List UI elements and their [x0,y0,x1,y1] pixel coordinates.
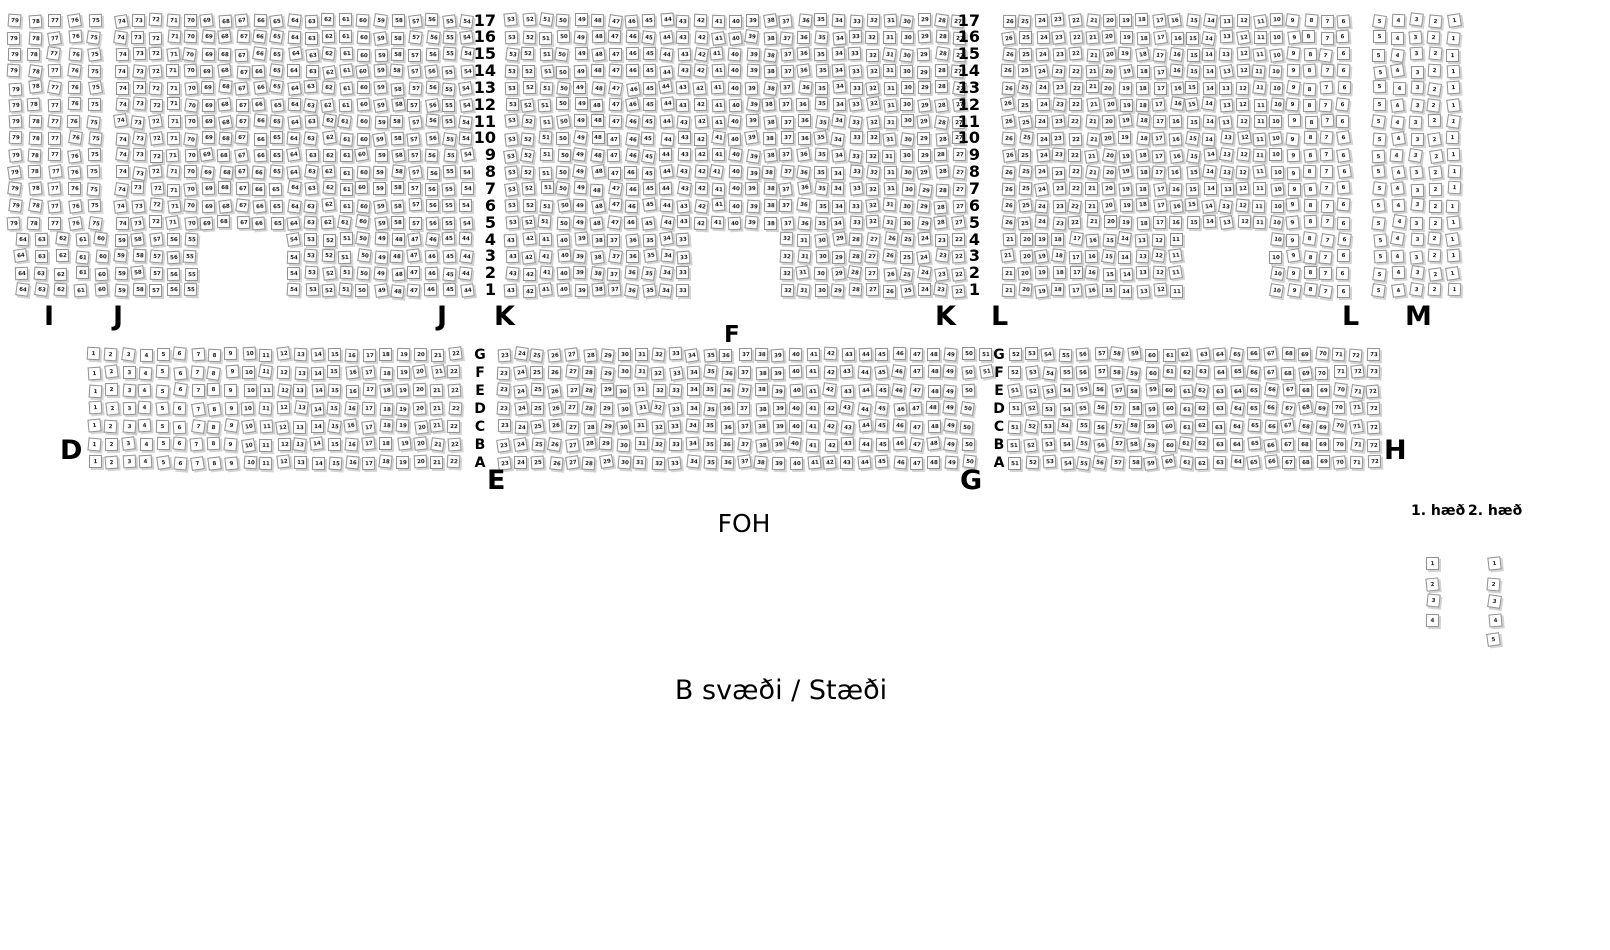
seat[interactable]: 48 [591,165,606,180]
seat[interactable]: 29 [917,48,931,62]
seat[interactable]: 57 [150,267,163,280]
seat[interactable]: 53 [504,31,518,45]
seat[interactable]: 70 [184,82,198,96]
seat[interactable]: 48 [390,284,404,298]
seat[interactable]: 67 [1282,456,1295,469]
seat[interactable]: 39 [773,402,786,415]
seat[interactable]: 37 [781,65,794,78]
seat[interactable]: 32 [865,215,879,229]
seat[interactable]: 62 [320,98,335,113]
seat[interactable]: 29 [599,437,613,451]
seat[interactable]: 54 [459,217,473,231]
seat[interactable]: 20 [1101,131,1115,145]
seat[interactable]: 54 [459,99,474,114]
seat[interactable]: 67 [234,48,248,62]
seat[interactable]: 10 [243,455,257,469]
seat[interactable]: 32 [651,420,665,434]
seat[interactable]: 15 [1187,216,1200,229]
seat[interactable]: 63 [303,131,318,146]
seat[interactable]: 10 [1269,131,1283,145]
seat[interactable]: 17 [1153,216,1166,229]
seat[interactable]: 7 [191,419,206,434]
seat[interactable]: 14 [311,384,325,398]
seat[interactable]: 20 [1103,165,1117,179]
seat[interactable]: 72 [150,182,164,196]
seat[interactable]: 44 [857,402,872,417]
seat[interactable]: 78 [28,80,42,94]
seat[interactable]: 34 [832,80,846,94]
seat[interactable]: 56 [425,183,438,196]
seat[interactable]: 22 [951,284,965,298]
seat[interactable]: 11 [1252,81,1266,95]
seat[interactable]: 39 [746,166,760,180]
seat[interactable]: 48 [928,420,941,433]
seat[interactable]: 53 [1042,384,1057,399]
seat[interactable]: 31 [882,150,895,163]
seat[interactable]: 3 [1410,198,1424,212]
seat[interactable]: 1 [1487,556,1501,570]
seat[interactable]: 43 [841,437,855,451]
seat[interactable]: 23 [1051,13,1065,27]
seat[interactable]: 5 [1373,80,1386,93]
seat[interactable]: 9 [1285,132,1299,146]
seat[interactable]: 37 [736,402,749,415]
seat[interactable]: 17 [361,420,376,435]
seat[interactable]: 68 [1298,400,1313,415]
seat[interactable]: 61 [340,183,353,196]
seat[interactable]: 7 [192,384,205,397]
seat[interactable]: 63 [1212,421,1225,434]
seat[interactable]: 8 [1303,47,1317,61]
seat[interactable]: 50 [356,266,370,280]
seat[interactable]: 77 [48,132,61,145]
seat[interactable]: 12 [277,383,292,398]
seat[interactable]: 33 [668,347,682,361]
seat[interactable]: 9 [224,438,238,452]
seat[interactable]: 31 [633,455,647,469]
seat[interactable]: 27 [565,348,580,363]
seat[interactable]: 73 [131,181,145,195]
seat[interactable]: 12 [1236,165,1250,179]
seat[interactable]: 10 [1269,115,1282,128]
seat[interactable]: 60 [356,199,370,213]
seat[interactable]: 74 [113,199,127,213]
seat[interactable]: 12 [1237,130,1252,145]
seat[interactable]: 41 [805,438,819,452]
seat[interactable]: 46 [893,437,907,451]
seat[interactable]: 20 [1102,29,1116,43]
seat[interactable]: 12 [277,455,291,469]
seat[interactable]: 67 [1280,418,1295,433]
seat[interactable]: 55 [442,217,456,231]
seat[interactable]: 7 [1319,267,1332,280]
seat[interactable]: 16 [1168,182,1182,196]
seat[interactable]: 43 [678,147,692,161]
seat[interactable]: 22 [447,455,461,469]
seat[interactable]: 69 [200,13,214,27]
seat[interactable]: 45 [641,149,656,164]
seat[interactable]: 26 [1002,148,1017,163]
seat[interactable]: 15 [327,384,341,398]
seat[interactable]: 13 [1218,116,1232,130]
seat[interactable]: 9 [1285,215,1299,229]
seat[interactable]: 17 [1151,131,1165,145]
seat[interactable]: 18 [1136,217,1150,231]
seat[interactable]: 36 [625,233,639,247]
seat[interactable]: 47 [909,437,924,452]
seat[interactable]: 64 [286,216,300,230]
seat[interactable]: 67 [1263,366,1277,380]
seat[interactable]: 32 [866,96,881,111]
seat[interactable]: 31 [634,419,648,433]
seat[interactable]: 16 [1085,283,1099,297]
seat[interactable]: 33 [849,131,863,145]
seat[interactable]: 22 [1069,97,1082,110]
seat[interactable]: 5 [1372,14,1387,29]
seat[interactable]: 64 [288,199,303,214]
seat[interactable]: 16 [1169,48,1184,63]
seat[interactable]: 29 [918,98,933,113]
seat[interactable]: 20 [1101,198,1116,213]
seat[interactable]: 45 [874,455,888,469]
seat[interactable]: 68 [217,149,231,163]
seat[interactable]: 61 [339,30,352,43]
seat[interactable]: 36 [796,63,811,78]
seat[interactable]: 25 [530,383,544,397]
seat[interactable]: 48 [392,233,405,246]
seat[interactable]: 48 [591,63,604,76]
seat[interactable]: 70 [184,98,199,113]
seat[interactable]: 20 [413,383,427,397]
seat[interactable]: 15 [327,365,340,378]
seat[interactable]: 59 [115,267,129,281]
seat[interactable]: 26 [547,366,561,380]
seat[interactable]: 29 [918,81,931,94]
seat[interactable]: 38 [591,282,605,296]
seat[interactable]: 22 [1070,82,1084,96]
seat[interactable]: 53 [506,97,519,110]
seat[interactable]: 68 [217,63,231,77]
seat[interactable]: 10 [1270,82,1284,96]
seat[interactable]: 69 [202,99,215,112]
seat[interactable]: 31 [796,266,811,281]
seat[interactable]: 77 [47,199,61,213]
seat[interactable]: 71 [1332,348,1346,362]
seat[interactable]: 27 [953,182,967,196]
seat[interactable]: 78 [27,98,41,112]
seat[interactable]: 73 [133,81,146,94]
seat[interactable]: 3 [1410,183,1423,196]
seat[interactable]: 4 [1392,199,1406,213]
seat[interactable]: 15 [1187,13,1202,28]
seat[interactable]: 39 [746,14,759,27]
seat[interactable]: 11 [1252,64,1266,78]
seat[interactable]: 8 [207,437,221,451]
seat[interactable]: 26 [883,248,898,263]
seat[interactable]: 39 [744,216,758,230]
seat[interactable]: 33 [848,97,863,112]
seat[interactable]: 48 [927,348,940,361]
seat[interactable]: 55 [1059,349,1073,363]
seat[interactable]: 34 [831,64,845,78]
seat[interactable]: 5 [1371,216,1385,230]
seat[interactable]: 6 [1336,130,1351,145]
seat[interactable]: 50 [556,114,571,129]
seat[interactable]: 59 [373,199,388,214]
seat[interactable]: 30 [900,165,914,179]
seat[interactable]: 74 [114,14,129,29]
seat[interactable]: 7 [1321,114,1335,128]
seat[interactable]: 62 [320,216,334,230]
seat[interactable]: 63 [35,250,48,263]
seat[interactable]: 24 [513,437,528,452]
seat[interactable]: 25 [1018,64,1032,78]
seat[interactable]: 61 [340,200,353,213]
seat[interactable]: 56 [424,65,439,80]
seat[interactable]: 59 [373,98,388,113]
seat[interactable]: 35 [814,13,827,26]
seat[interactable]: 55 [443,165,457,179]
seat[interactable]: 78 [28,64,43,79]
seat[interactable]: 67 [236,216,249,229]
seat[interactable]: 47 [607,148,621,162]
seat[interactable]: 8 [1302,30,1315,43]
seat[interactable]: 36 [721,366,735,380]
seat[interactable]: 34 [832,46,846,60]
seat[interactable]: 75 [88,97,101,110]
seat[interactable]: 28 [935,80,948,93]
seat[interactable]: 51 [1007,439,1021,453]
seat[interactable]: 40 [788,402,802,416]
seat[interactable]: 66 [253,80,268,95]
seat[interactable]: 56 [425,148,439,162]
seat[interactable]: 53 [1042,454,1056,468]
seat[interactable]: 3 [1487,594,1502,609]
seat[interactable]: 21 [1086,14,1100,28]
seat[interactable]: 14 [1119,285,1132,298]
seat[interactable]: 51 [539,32,552,45]
seat[interactable]: 17 [1069,231,1084,246]
seat[interactable]: 21 [431,364,446,379]
seat[interactable]: 64 [1212,347,1226,361]
seat[interactable]: 49 [572,199,585,212]
seat[interactable]: 51 [538,99,552,113]
seat[interactable]: 24 [1036,148,1050,162]
seat[interactable]: 49 [575,97,588,110]
seat[interactable]: 58 [133,249,147,263]
seat[interactable]: 54 [459,14,474,29]
seat[interactable]: 39 [746,199,760,213]
seat[interactable]: 31 [882,215,897,230]
seat[interactable]: 47 [608,167,621,180]
seat[interactable]: 62 [55,231,70,246]
seat[interactable]: 47 [909,420,923,434]
seat[interactable]: 6 [173,437,187,451]
seat[interactable]: 23 [498,419,511,432]
seat[interactable]: 45 [874,401,889,416]
seat[interactable]: 57 [409,217,422,230]
seat[interactable]: 35 [643,233,657,247]
seat[interactable]: 40 [728,47,742,61]
seat[interactable]: 26 [884,231,899,246]
seat[interactable]: 23 [1051,64,1065,78]
seat[interactable]: 48 [391,267,405,281]
seat[interactable]: 13 [294,400,309,415]
seat[interactable]: 69 [200,165,215,180]
seat[interactable]: 6 [1336,97,1351,112]
seat[interactable]: 37 [737,383,752,398]
seat[interactable]: 5 [156,420,169,433]
seat[interactable]: 29 [601,366,615,380]
seat[interactable]: 35 [814,30,828,44]
seat[interactable]: 58 [1126,418,1140,432]
seat[interactable]: 19 [1035,266,1048,279]
seat[interactable]: 33 [668,402,683,417]
seat[interactable]: 52 [322,249,336,263]
seat[interactable]: 33 [676,266,689,279]
seat[interactable]: 64 [287,31,301,45]
seat[interactable]: 23 [1052,216,1066,230]
seat[interactable]: 61 [340,81,354,95]
seat[interactable]: 40 [727,63,741,77]
seat[interactable]: 51 [538,215,552,229]
seat[interactable]: 59 [1145,402,1159,416]
seat[interactable]: 56 [424,13,438,27]
seat[interactable]: 35 [815,82,828,95]
seat[interactable]: 47 [407,232,422,247]
seat[interactable]: 35 [703,456,717,470]
seat[interactable]: 39 [574,232,588,246]
seat[interactable]: 5 [1372,98,1385,111]
seat[interactable]: 43 [676,31,690,45]
seat[interactable]: 69 [199,147,214,162]
seat[interactable]: 2 [1427,98,1441,112]
seat[interactable]: 79 [7,64,21,78]
seat[interactable]: 30 [617,456,631,470]
seat[interactable]: 57 [1111,437,1125,451]
seat[interactable]: 6 [172,346,186,360]
seat[interactable]: 34 [659,265,674,280]
seat[interactable]: 14 [1202,115,1216,129]
seat[interactable]: 52 [523,199,536,212]
seat[interactable]: 37 [780,81,794,95]
seat[interactable]: 61 [339,132,353,146]
seat[interactable]: 6 [1337,181,1351,195]
seat[interactable]: 12 [276,346,291,361]
seat[interactable]: 72 [149,32,162,45]
seat[interactable]: 49 [374,250,388,264]
seat[interactable]: 30 [616,384,629,397]
seat[interactable]: 21 [1085,182,1098,195]
seat[interactable]: 63 [304,80,318,94]
seat[interactable]: 51 [540,81,554,95]
seat[interactable]: 43 [677,63,691,77]
seat[interactable]: 38 [755,438,769,452]
seat[interactable]: 8 [1303,82,1317,96]
seat[interactable]: 54 [459,131,473,145]
seat[interactable]: 5 [156,455,171,470]
seat[interactable]: 71 [166,64,179,77]
seat[interactable]: 29 [917,132,930,145]
seat[interactable]: 20 [414,420,429,435]
seat[interactable]: 73 [130,216,145,231]
seat[interactable]: 35 [703,438,717,452]
seat[interactable]: 54 [286,283,300,297]
seat[interactable]: 19 [1119,64,1134,79]
seat[interactable]: 15 [1185,131,1200,146]
seat[interactable]: 50 [555,65,568,78]
seat[interactable]: 52 [523,13,537,27]
seat[interactable]: 47 [608,181,623,196]
seat[interactable]: 70 [1316,346,1330,360]
seat[interactable]: 42 [523,267,536,280]
seat[interactable]: 79 [9,148,23,162]
seat[interactable]: 7 [191,348,205,362]
seat[interactable]: 38 [763,115,777,129]
seat[interactable]: 29 [917,114,931,128]
seat[interactable]: 3 [122,402,136,416]
seat[interactable]: 17 [1069,250,1083,264]
seat[interactable]: 56 [167,283,180,296]
seat[interactable]: 53 [304,266,318,280]
seat[interactable]: 36 [798,80,812,94]
seat[interactable]: 66 [254,133,267,146]
seat[interactable]: 68 [218,29,232,43]
seat[interactable]: 55 [1076,382,1091,397]
seat[interactable]: 73 [133,131,148,146]
seat[interactable]: 11 [1252,132,1266,146]
seat[interactable]: 22 [1068,149,1081,162]
seat[interactable]: 19 [1118,182,1132,196]
seat[interactable]: 43 [676,80,690,94]
seat[interactable]: 40 [789,420,802,433]
seat[interactable]: 63 [306,65,319,78]
seat[interactable]: 21 [1085,64,1099,78]
seat[interactable]: 7 [1318,250,1332,264]
seat[interactable]: 19 [1118,131,1131,144]
seat[interactable]: 25 [1019,165,1033,179]
seat[interactable]: 63 [305,31,318,44]
seat[interactable]: 63 [1212,384,1226,398]
seat[interactable]: 2 [1428,267,1443,282]
seat[interactable]: 7 [1319,98,1333,112]
seat[interactable]: 37 [779,199,792,212]
seat[interactable]: 58 [390,199,404,213]
seat[interactable]: 69 [1298,347,1312,361]
seat[interactable]: 33 [669,366,684,381]
seat[interactable]: 46 [891,383,906,398]
seat[interactable]: 7 [1319,81,1333,95]
seat[interactable]: 13 [1219,64,1234,79]
seat[interactable]: 64 [288,181,303,196]
seat[interactable]: 14 [312,457,325,470]
seat[interactable]: 38 [763,181,777,195]
seat[interactable]: 44 [660,12,674,26]
seat[interactable]: 67 [236,115,250,129]
seat[interactable]: 9 [224,456,238,470]
seat[interactable]: 37 [779,14,793,28]
seat[interactable]: 65 [270,14,285,29]
seat[interactable]: 52 [521,216,535,230]
seat[interactable]: 45 [875,419,889,433]
seat[interactable]: 19 [1118,149,1132,163]
seat[interactable]: 47 [607,30,621,44]
seat[interactable]: 30 [900,132,915,147]
seat[interactable]: 32 [865,49,878,62]
seat[interactable]: 17 [362,402,375,415]
seat[interactable]: 5 [156,348,169,361]
seat[interactable]: 52 [520,148,535,163]
